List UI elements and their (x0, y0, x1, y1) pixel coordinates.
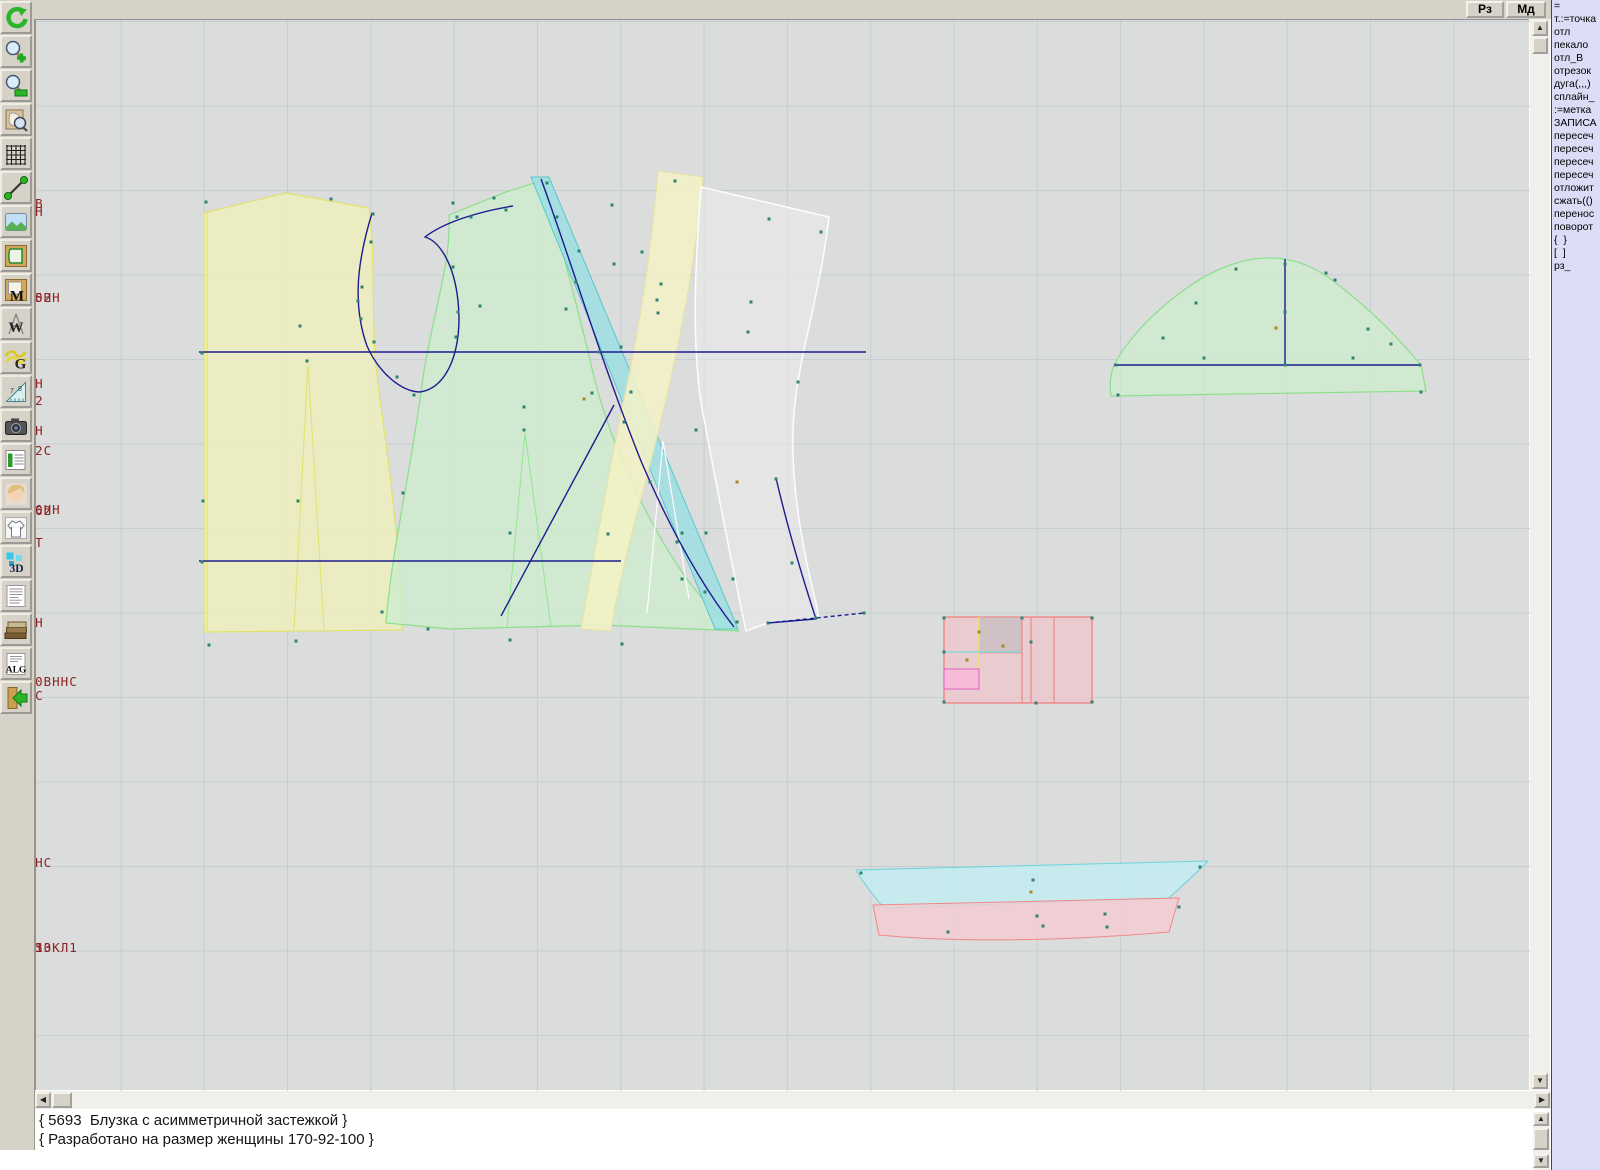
status-line-2: { Разработано на размер женщины 170-92-1… (35, 1129, 1531, 1148)
point-label: Т6НВ0НН (36, 502, 61, 517)
toolbar-grid-button[interactable] (0, 137, 32, 170)
point-label: Т60Н0ВННС (36, 674, 78, 689)
pattern-point[interactable] (523, 406, 526, 409)
command-line[interactable]: [ ] (1552, 247, 1600, 260)
pattern-point[interactable] (820, 231, 823, 234)
command-line[interactable]: пересеч (1552, 156, 1600, 169)
pattern-point[interactable] (1106, 926, 1109, 929)
pattern-point[interactable] (623, 421, 626, 424)
toolbar-model-photo-button[interactable] (0, 477, 32, 510)
command-line[interactable]: сжать(() (1552, 195, 1600, 208)
pattern-point[interactable] (427, 628, 430, 631)
pattern-point[interactable] (556, 216, 559, 219)
garment-sketch-icon (3, 515, 29, 541)
pattern-point[interactable] (299, 325, 302, 328)
pattern-point[interactable] (457, 311, 460, 314)
pattern-point[interactable] (1420, 391, 1423, 394)
command-line[interactable]: пересеч (1552, 169, 1600, 182)
pattern-point[interactable] (357, 300, 360, 303)
point-label: Т22НН (36, 615, 44, 630)
svg-text:W: W (9, 320, 24, 336)
pattern-point[interactable] (306, 360, 309, 363)
pattern-point[interactable] (456, 216, 459, 219)
point-label: Т121С (36, 688, 44, 703)
pattern-point[interactable] (611, 204, 614, 207)
command-line[interactable]: сплайн_ (1552, 91, 1600, 104)
toolbar-pattern-piece-button[interactable] (0, 239, 32, 272)
pattern-point[interactable] (767, 622, 770, 625)
pattern-point[interactable] (373, 341, 376, 344)
spec-table-icon (3, 447, 29, 473)
svg-text:G: G (15, 356, 27, 371)
drafting-w-icon: W (3, 311, 29, 337)
pattern-point[interactable] (402, 492, 405, 495)
pattern-point[interactable] (1367, 328, 1370, 331)
pattern-point[interactable] (1036, 915, 1039, 918)
grid-icon (3, 141, 29, 167)
command-line[interactable]: :=метка (1552, 104, 1600, 117)
pattern-point[interactable] (656, 299, 659, 302)
pattern-point[interactable] (641, 251, 644, 254)
pattern-point[interactable] (1030, 641, 1033, 644)
point-label: Х02733 (36, 940, 52, 955)
toolbar-zoom-out-button[interactable] (0, 69, 32, 102)
pattern-point[interactable] (413, 394, 416, 397)
pattern-point[interactable] (1030, 891, 1033, 894)
toolbar-text-document-button[interactable] (0, 579, 32, 612)
pattern-point[interactable] (297, 500, 300, 503)
pattern-point[interactable] (649, 481, 652, 484)
canvas-vscrollbar[interactable]: ▲ ▼ (1530, 19, 1550, 1090)
point-label: Т55В0НН (36, 290, 61, 305)
command-line[interactable]: = (1552, 0, 1600, 13)
pattern-point[interactable] (620, 346, 623, 349)
pattern-point[interactable] (860, 872, 863, 875)
pattern-point[interactable] (1021, 617, 1024, 620)
pattern-point[interactable] (943, 617, 946, 620)
pattern-labels: Т0Т3Т1Т44ТА1Ж2ТБПТ6Т16БТТ16СХ1Т11СЦ1Ц2Ц1… (36, 117, 78, 1091)
pattern-point[interactable] (575, 281, 578, 284)
vscroll-down-button[interactable]: ▼ (1532, 1073, 1548, 1089)
pattern-point[interactable] (1275, 327, 1278, 330)
pattern-point[interactable] (815, 617, 818, 620)
pattern-point[interactable] (1042, 925, 1045, 928)
pattern-point[interactable] (681, 532, 684, 535)
pattern-point[interactable] (546, 182, 549, 185)
undo-icon (3, 5, 29, 31)
point-label: Т92ННС (36, 855, 52, 870)
command-line[interactable]: пересеч (1552, 130, 1600, 143)
hscroll-left-button[interactable]: ◀ (35, 1092, 51, 1108)
preview-icon (3, 107, 29, 133)
pattern-point[interactable] (660, 283, 663, 286)
piece-sleeve[interactable] (1110, 258, 1426, 396)
exit-icon (3, 685, 29, 711)
pattern-point[interactable] (455, 336, 458, 339)
msg-scroll-up-button[interactable]: ▲ (1533, 1112, 1549, 1126)
camera-icon (3, 413, 29, 439)
pattern-piece-icon (3, 243, 29, 269)
pattern-point[interactable] (705, 532, 708, 535)
grazia-g-icon: G (3, 345, 29, 371)
pattern-point[interactable] (1002, 645, 1005, 648)
pattern-point[interactable] (1235, 268, 1238, 271)
ruler-icon: 78 (3, 379, 29, 405)
command-line[interactable]: отрезок (1552, 65, 1600, 78)
pattern-point[interactable] (1178, 906, 1181, 909)
pattern-point[interactable] (509, 639, 512, 642)
pattern-point[interactable] (470, 216, 473, 219)
command-line[interactable]: рз_ (1552, 260, 1600, 273)
vscroll-thumb[interactable] (1532, 37, 1548, 54)
pattern-point[interactable] (1284, 364, 1287, 367)
svg-text:M: M (10, 288, 24, 303)
pattern-point[interactable] (208, 644, 211, 647)
msg-scroll-thumb[interactable] (1533, 1128, 1549, 1150)
pattern-point[interactable] (630, 391, 633, 394)
pattern-point[interactable] (330, 198, 333, 201)
toolbar-camera-button[interactable] (0, 409, 32, 442)
toolbar-pattern-m-button[interactable]: M (0, 273, 32, 306)
pattern-point[interactable] (1352, 357, 1355, 360)
toolbar-preview-button[interactable] (0, 103, 32, 136)
pattern-point[interactable] (396, 376, 399, 379)
pattern-point[interactable] (202, 500, 205, 503)
point-label: Т9192 (36, 393, 44, 408)
piece-back-bodice[interactable] (204, 193, 402, 632)
command-line[interactable]: ЗАПИСА (1552, 117, 1600, 130)
algorithm-doc-icon: ALG (3, 651, 29, 677)
top-strip: Рз Мд (34, 0, 1551, 19)
pattern-point[interactable] (797, 381, 800, 384)
pattern-point[interactable] (775, 478, 778, 481)
drawing-canvas[interactable]: Т0Т3Т1Т44ТА1Ж2ТБПТ6Т16БТТ16СХ1Т11СЦ1Ц2Ц1… (35, 19, 1529, 1090)
pattern-point[interactable] (1390, 343, 1393, 346)
pattern-point[interactable] (621, 643, 624, 646)
pattern-point[interactable] (565, 308, 568, 311)
toolbar-drafting-w-button[interactable]: W (0, 307, 32, 340)
status-line-1: { 5693 Блузка с асимметричной застежкой … (35, 1110, 1531, 1129)
toolbar-undo-button[interactable] (0, 1, 32, 34)
pattern-point[interactable] (736, 481, 739, 484)
pattern-point[interactable] (747, 331, 750, 334)
toolbar-image-button[interactable] (0, 205, 32, 238)
svg-text:3D: 3D (9, 563, 23, 575)
toolbar-spec-table-button[interactable] (0, 443, 32, 476)
toolbar: MWG783DALG (0, 0, 35, 1150)
measure-line-icon (3, 175, 29, 201)
command-line[interactable]: { } (1552, 234, 1600, 247)
rz-button[interactable]: Рз (1466, 1, 1504, 18)
text-document-icon (3, 583, 29, 609)
pattern-point[interactable] (205, 201, 208, 204)
message-vscrollbar[interactable]: ▲ ▼ (1533, 1112, 1550, 1170)
command-line[interactable]: отл (1552, 26, 1600, 39)
pattern-point[interactable] (978, 631, 981, 634)
pattern-point[interactable] (1284, 311, 1287, 314)
toolbar-view-3d-button[interactable]: 3D (0, 545, 32, 578)
command-line[interactable]: отложит (1552, 182, 1600, 195)
vscroll-up-button[interactable]: ▲ (1532, 20, 1548, 36)
pattern-point[interactable] (372, 213, 375, 216)
toolbar-ruler-button[interactable]: 78 (0, 375, 32, 408)
point-label: Т91НН (36, 423, 44, 438)
pattern-point[interactable] (381, 611, 384, 614)
command-line[interactable]: перенос (1552, 208, 1600, 221)
toolbar-reference-books-button[interactable] (0, 613, 32, 646)
pattern-point[interactable] (695, 429, 698, 432)
command-line[interactable]: дуга(,,,) (1552, 78, 1600, 91)
pattern-point[interactable] (732, 578, 735, 581)
command-line[interactable]: т.:=точка (1552, 13, 1600, 26)
pattern-point[interactable] (607, 533, 610, 536)
pattern-point[interactable] (943, 701, 946, 704)
pattern-point[interactable] (1115, 364, 1118, 367)
pattern-point[interactable] (943, 651, 946, 654)
pattern-point[interactable] (1035, 702, 1038, 705)
pattern-point[interactable] (1334, 279, 1337, 282)
view-3d-icon: 3D (3, 549, 29, 575)
pattern-point[interactable] (509, 532, 512, 535)
pattern-point[interactable] (295, 640, 298, 643)
pattern-point[interactable] (1419, 364, 1422, 367)
pattern-point[interactable] (479, 305, 482, 308)
command-panel[interactable]: =т.:=точкаотлпекалоотл_Вотрезокдуга(,,,)… (1551, 0, 1600, 1170)
hscroll-right-button[interactable]: ▶ (1534, 1092, 1550, 1108)
pattern-point[interactable] (613, 263, 616, 266)
pattern-point[interactable] (791, 562, 794, 565)
point-label: Т92НН (36, 376, 44, 391)
toolbar-algorithm-doc-button[interactable]: ALG (0, 647, 32, 680)
pattern-point[interactable] (523, 429, 526, 432)
pattern-point[interactable] (1203, 357, 1206, 360)
pattern-point[interactable] (370, 241, 373, 244)
svg-text:ALG: ALG (6, 665, 27, 675)
zoom-out-icon (3, 73, 29, 99)
hscroll-thumb[interactable] (52, 1092, 72, 1108)
status-message-area: { 5693 Блузка с асимметричной застежкой … (35, 1110, 1531, 1170)
pattern-point[interactable] (1117, 394, 1120, 397)
svg-text:8: 8 (18, 386, 22, 393)
pattern-point[interactable] (583, 398, 586, 401)
pattern-point[interactable] (598, 351, 601, 354)
pattern-point[interactable] (1325, 272, 1328, 275)
pattern-point[interactable] (361, 286, 364, 289)
pattern-point[interactable] (704, 591, 707, 594)
md-button[interactable]: Мд (1506, 1, 1546, 18)
pattern-point[interactable] (505, 209, 508, 212)
toolbar-exit-button[interactable] (0, 681, 32, 714)
pattern-point[interactable] (676, 541, 679, 544)
command-line[interactable]: отл_В (1552, 52, 1600, 65)
pattern-point[interactable] (750, 301, 753, 304)
point-label: Т16БТ (36, 535, 44, 550)
pattern-point[interactable] (360, 318, 363, 321)
pattern-point[interactable] (1104, 913, 1107, 916)
toolbar-garment-sketch-button[interactable] (0, 511, 32, 544)
pattern-point[interactable] (1195, 302, 1198, 305)
pattern-point[interactable] (1032, 879, 1035, 882)
image-icon (3, 209, 29, 235)
pattern-point[interactable] (591, 392, 594, 395)
point-label: Т0Б02С (36, 443, 52, 458)
pattern-point[interactable] (1091, 701, 1094, 704)
pattern-point[interactable] (1091, 617, 1094, 620)
pattern-cad-window: MWG783DALG Рз Мд (0, 0, 1600, 1170)
pattern-point[interactable] (452, 202, 455, 205)
pattern-point[interactable] (947, 931, 950, 934)
model-photo-icon (3, 481, 29, 507)
command-line[interactable]: пересеч (1552, 143, 1600, 156)
pattern-point[interactable] (493, 197, 496, 200)
point-label: Т20НН (36, 204, 44, 219)
pattern-point[interactable] (1284, 263, 1287, 266)
command-line[interactable]: поворот (1552, 221, 1600, 234)
pattern-point[interactable] (452, 266, 455, 269)
pattern-point[interactable] (674, 180, 677, 183)
pattern-point[interactable] (966, 659, 969, 662)
pattern-point[interactable] (1199, 866, 1202, 869)
pattern-point[interactable] (201, 352, 204, 355)
svg-text:7: 7 (10, 388, 14, 395)
pattern-point[interactable] (863, 612, 866, 615)
pattern-point[interactable] (736, 621, 739, 624)
toolbar-measure-line-button[interactable] (0, 171, 32, 204)
piece-side-white[interactable] (695, 187, 829, 631)
toolbar-grazia-g-button[interactable]: G (0, 341, 32, 374)
pattern-point[interactable] (681, 578, 684, 581)
pattern-point[interactable] (201, 561, 204, 564)
pattern-m-icon: M (3, 277, 29, 303)
command-line[interactable]: пекало (1552, 39, 1600, 52)
pattern-point[interactable] (578, 250, 581, 253)
pattern-point[interactable] (657, 312, 660, 315)
pattern-point[interactable] (768, 218, 771, 221)
piece-collar-pink[interactable] (873, 898, 1179, 940)
msg-scroll-down-button[interactable]: ▼ (1533, 1154, 1549, 1168)
toolbar-zoom-in-button[interactable] (0, 35, 32, 68)
reference-books-icon (3, 617, 29, 643)
pattern-point[interactable] (1162, 337, 1165, 340)
canvas-hscrollbar[interactable]: ◀ ▶ (35, 1091, 1551, 1109)
zoom-in-icon (3, 39, 29, 65)
